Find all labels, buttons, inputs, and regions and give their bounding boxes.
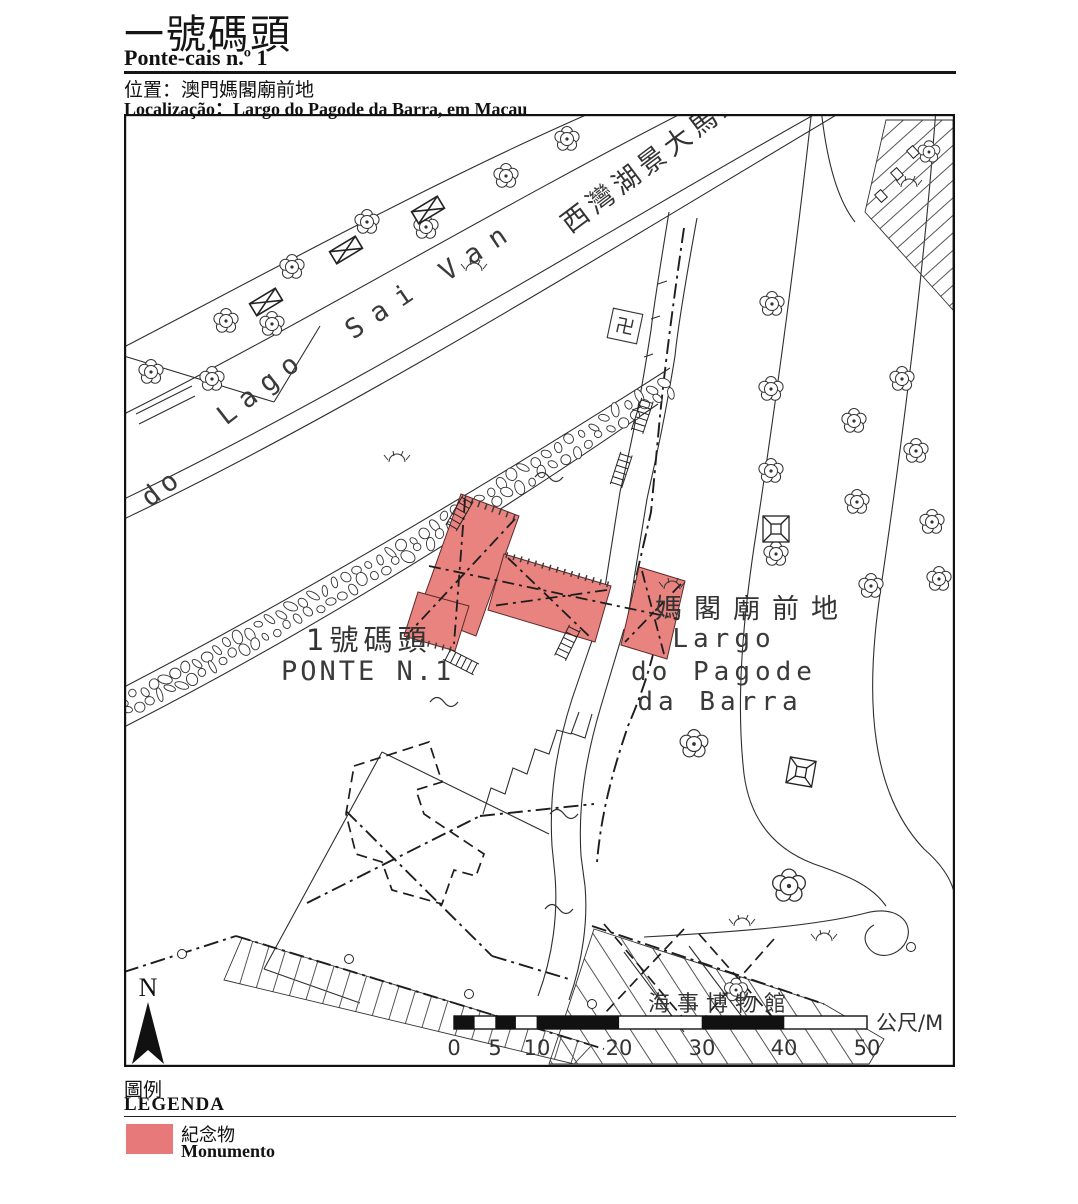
scale-tick: 5 [488,1036,501,1060]
scale-tick: 50 [854,1036,881,1060]
legend-item-portuguese: Monumento [181,1141,275,1162]
site-plan-map: 卍 西灣湖景大馬路 do Lago Sai Van 1號碼頭 PONTE N.1… [124,114,955,1067]
fountain-square-icon [763,516,789,542]
header-divider [124,71,956,74]
road-name-label: 西灣湖景大馬路 [556,114,754,240]
pier-label-zh: 1號碼頭 [306,623,431,657]
fountain-square-icon [786,757,816,787]
square-label-pt2: do Pagode [631,657,817,687]
scale-tick: 30 [689,1036,716,1060]
north-arrow: N [132,973,164,1064]
lake-word-van: Van [434,213,524,288]
scale-tick: 0 [447,1036,460,1060]
scale-tick: 10 [524,1036,551,1060]
museum-label-zh: 海事博物館 [648,992,793,1017]
temple-marker: 卍 [607,308,643,344]
page-title-portuguese: Ponte-cais n.º 1 [124,45,268,71]
square-label-pt3: da Barra [637,687,802,717]
scale-tick: 20 [606,1036,633,1060]
north-label: N [139,973,158,1002]
monument-color-swatch [126,1124,173,1154]
maritime-museum-outline [264,712,594,1003]
legend-divider [124,1116,956,1117]
square-label-zh: 媽閣廟前地 [655,594,850,625]
scale-tick: 40 [771,1036,798,1060]
lake-word-sai: Sai [340,271,430,346]
legend-title-portuguese: LEGENDA [124,1094,225,1116]
lake-word-do: do [135,462,189,514]
square-label-pt1: Largo [672,624,775,654]
pier-label-pt: PONTE N.1 [281,656,454,687]
scale-unit: 公尺/M [876,1011,943,1035]
